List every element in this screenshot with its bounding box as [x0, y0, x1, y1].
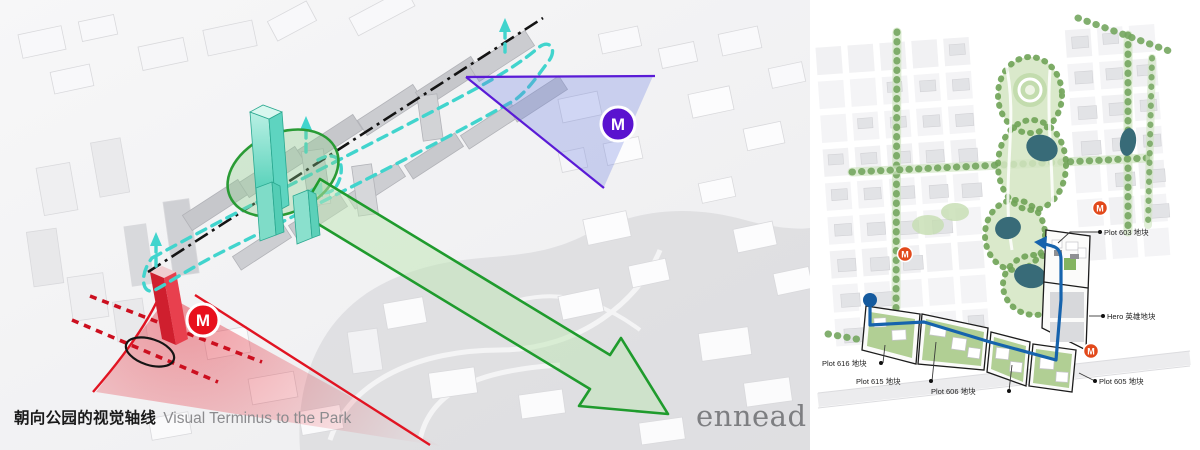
axon-diagram: M M: [0, 0, 810, 450]
metro-letter: M: [1087, 347, 1095, 357]
ennead-logo: ennead: [696, 399, 807, 433]
ring-garden: [1013, 73, 1047, 107]
metro-letter: M: [196, 311, 210, 330]
plot-label-616: Plot 616 地块: [822, 358, 867, 368]
metro-badge-red: M: [187, 304, 219, 336]
route-start-dot: [863, 293, 877, 307]
plot-label-606: Plot 606 地块: [931, 386, 976, 396]
plot-label-605: Plot 605 地块: [1099, 376, 1144, 386]
metro-letter: M: [901, 250, 909, 260]
metro-letter: M: [611, 115, 625, 134]
site-plan: Plot 603 地块 Hero 英雄地块 Plot 605 地块 Plot 6…: [810, 0, 1200, 450]
caption-chinese: 朝向公园的视觉轴线: [14, 406, 156, 428]
caption-english: Visual Terminus to the Park: [163, 410, 351, 428]
metro-letter: M: [1096, 204, 1104, 214]
plot-label-615: Plot 615 地块: [856, 376, 901, 386]
slide: M M: [0, 0, 1200, 450]
plot-label-hero: Hero 英雄地块: [1107, 311, 1156, 321]
slide-caption: 朝向公园的视觉轴线 Visual Terminus to the Park: [14, 406, 351, 428]
metro-badge-purple: M: [601, 107, 635, 141]
plot-label-603: Plot 603 地块: [1104, 227, 1149, 237]
